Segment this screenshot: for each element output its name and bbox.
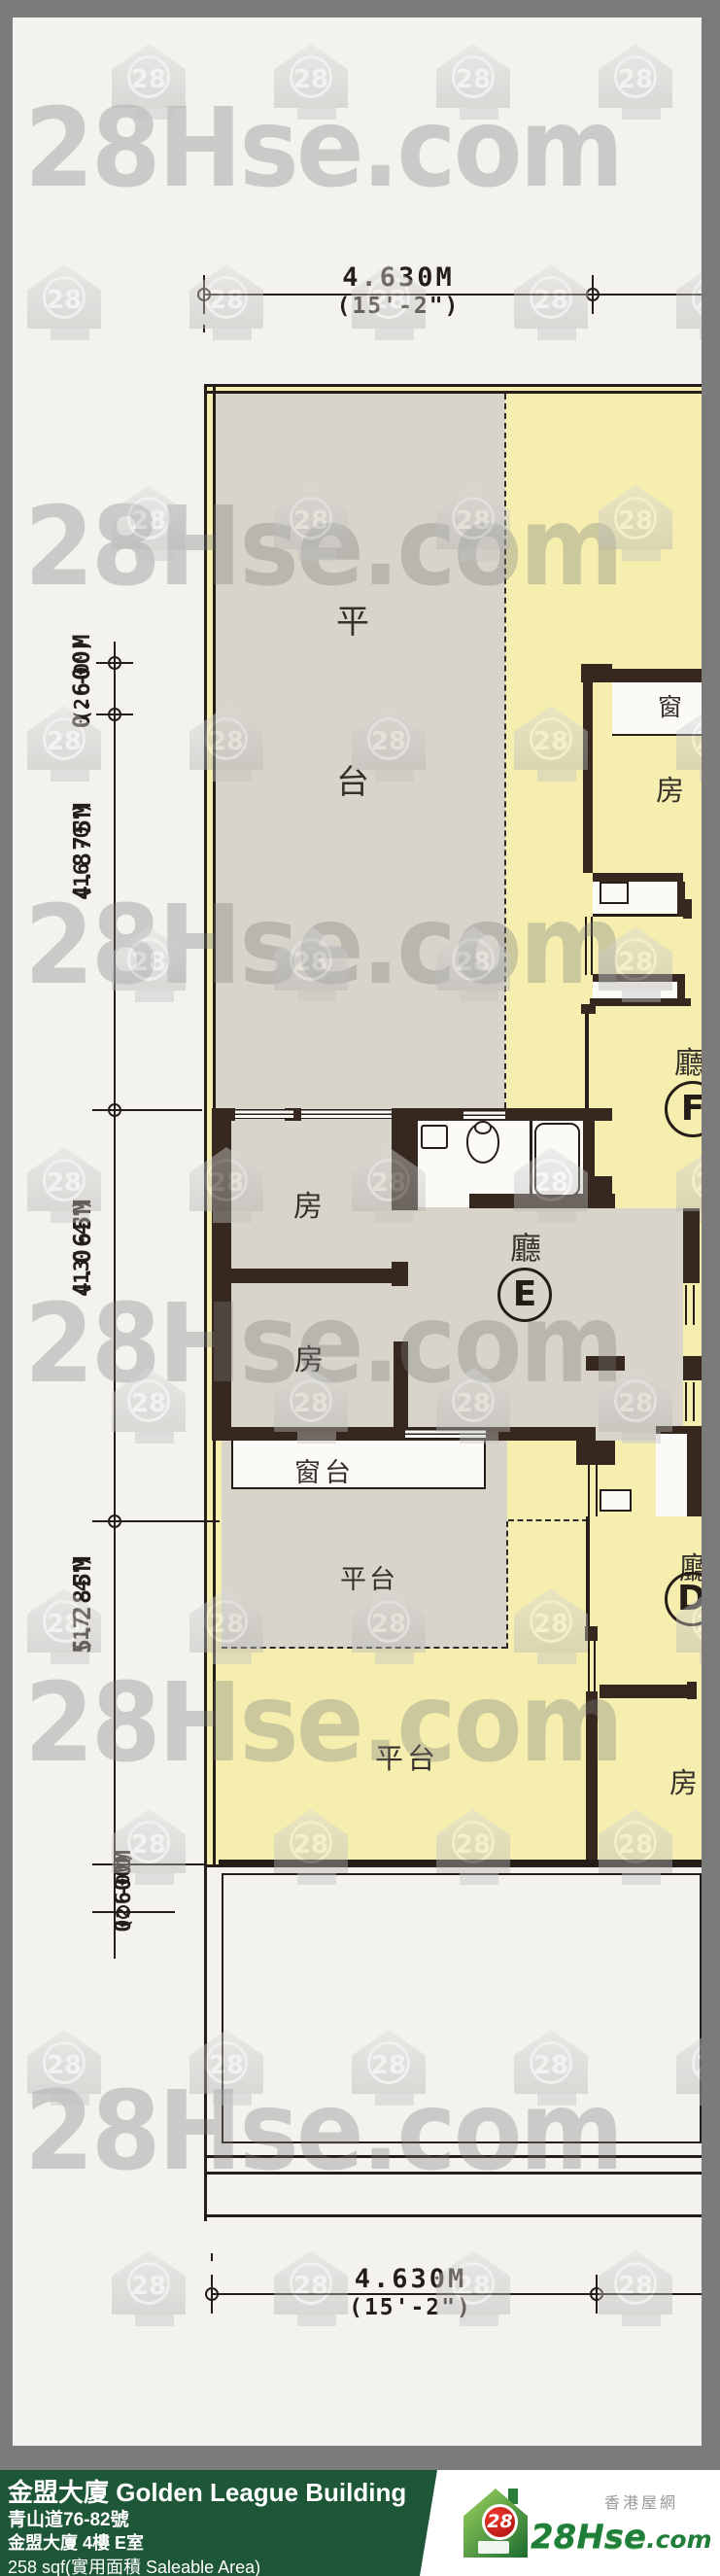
logo-brand-text: 28Hse.com	[531, 2518, 712, 2557]
watermark-house-door	[135, 1432, 174, 1444]
footer-building-title: 金盟大廈 Golden League Building	[8, 2473, 406, 2509]
watermark-house-door	[537, 2094, 576, 2106]
logo-28-badge: 28	[482, 2504, 518, 2540]
watermark-house-door	[622, 108, 661, 120]
watermark-house-door	[297, 108, 336, 120]
watermark-house-icon: 28	[436, 1368, 510, 1445]
watermark-house-icon: 28	[112, 485, 186, 563]
watermark-28-ring: 28	[530, 1159, 572, 1201]
watermark-28-ring: 28	[205, 2041, 248, 2084]
watermark-28-ring: 28	[452, 497, 495, 540]
watermark-house-icon: 28	[514, 1588, 588, 1666]
watermark-28-ring: 28	[127, 2262, 170, 2305]
watermark-house-door	[297, 1432, 336, 1444]
watermark-28-ring: 28	[367, 276, 410, 319]
watermark-house-icon: 28	[189, 1588, 263, 1666]
watermark-28-ring: 28	[127, 1821, 170, 1863]
watermark-28-ring: 28	[530, 2041, 572, 2084]
watermark-28-ring: 28	[452, 1379, 495, 1422]
logo-house-door	[478, 2541, 509, 2554]
watermark-28-ring: 28	[452, 55, 495, 98]
watermark-house-icon: 28	[436, 485, 510, 563]
watermark-house-door	[375, 770, 414, 782]
watermark-house-door	[213, 2094, 252, 2106]
watermark-house-door	[213, 329, 252, 340]
watermark-house-icon: 28	[352, 1147, 426, 1225]
watermark-house-icon: 28	[599, 1809, 672, 1887]
watermark-house-icon: 28	[352, 706, 426, 783]
watermark-house-icon: 28	[599, 2250, 672, 2328]
watermark-28-ring: 28	[127, 497, 170, 540]
watermark-house-icon: 28	[112, 1809, 186, 1887]
watermark-house-icon: 28	[27, 1147, 101, 1225]
watermark-house-door	[51, 1211, 89, 1223]
watermark-house-door	[51, 2094, 89, 2106]
watermark-28-ring: 28	[290, 938, 332, 981]
watermark-house-icon: 28	[599, 44, 672, 122]
watermark-house-door	[213, 1211, 252, 1223]
watermark-house-icon: 28	[189, 2030, 263, 2107]
scan-border-bottom	[0, 2446, 720, 2470]
watermark-28-ring: 28	[614, 1379, 657, 1422]
watermark-text: 28Hse.com	[24, 1660, 621, 1787]
watermark-28-ring: 28	[614, 55, 657, 98]
watermark-house-icon: 28	[112, 1368, 186, 1445]
watermark-house-icon: 28	[112, 2250, 186, 2328]
watermark-house-icon: 28	[274, 2250, 348, 2328]
watermark-28-ring: 28	[43, 717, 86, 760]
footer-area: 258 sqf(實用面積 Saleable Area)	[8, 2554, 260, 2576]
logo-tagline: 香港屋網	[604, 2489, 678, 2513]
watermark-28-ring: 28	[530, 1600, 572, 1643]
watermark-house-icon: 28	[352, 2030, 426, 2107]
watermark-28-ring: 28	[43, 276, 86, 319]
watermark-house-icon: 28	[274, 1368, 348, 1445]
scan-border-top	[0, 0, 720, 17]
watermark-house-icon: 28	[27, 2030, 101, 2107]
watermark-28-ring: 28	[614, 2262, 657, 2305]
watermark-house-icon: 28	[274, 1809, 348, 1887]
watermark-house-icon: 28	[436, 1809, 510, 1887]
watermark-house-door	[622, 1873, 661, 1885]
watermark-house-door	[297, 1873, 336, 1885]
watermark-house-door	[51, 770, 89, 782]
watermark-28-ring: 28	[127, 938, 170, 981]
watermark-house-door	[213, 1653, 252, 1664]
watermark-house-door	[297, 2315, 336, 2326]
watermark-house-icon: 28	[436, 44, 510, 122]
watermark-house-icon: 28	[436, 926, 510, 1004]
watermark-house-door	[375, 1211, 414, 1223]
watermark-28-ring: 28	[367, 1159, 410, 1201]
watermark-house-icon: 28	[514, 1147, 588, 1225]
watermark-house-door	[213, 770, 252, 782]
watermark-house-icon: 28	[274, 44, 348, 122]
watermark-28-ring: 28	[43, 1159, 86, 1201]
watermark-house-door	[622, 1432, 661, 1444]
watermark-house-door	[460, 991, 498, 1002]
scan-border-right	[702, 0, 720, 2470]
watermark-house-door	[297, 549, 336, 561]
watermark-house-door	[375, 2094, 414, 2106]
watermark-house-door	[51, 329, 89, 340]
watermark-house-door	[537, 1653, 576, 1664]
watermark-28-ring: 28	[530, 717, 572, 760]
watermark-house-door	[537, 1211, 576, 1223]
watermark-28-ring: 28	[614, 497, 657, 540]
footer-unit: 金盟大廈 4樓 E室	[8, 2529, 144, 2555]
scan-border-left	[0, 0, 13, 2470]
watermark-28-ring: 28	[290, 2262, 332, 2305]
watermark-house-icon: 28	[599, 926, 672, 1004]
logo-brand-tld: .com	[646, 2525, 712, 2554]
watermark-28-ring: 28	[530, 276, 572, 319]
watermark-layer: 28Hse.com28Hse.com28Hse.com28Hse.com28Hs…	[0, 0, 720, 2446]
watermark-house-door	[537, 770, 576, 782]
watermark-house-door	[375, 1653, 414, 1664]
watermark-28-ring: 28	[205, 1600, 248, 1643]
watermark-house-icon: 28	[27, 264, 101, 342]
watermark-house-icon: 28	[27, 1588, 101, 1666]
logo-brand-main: 28Hse	[531, 2518, 646, 2557]
watermark-house-icon: 28	[352, 264, 426, 342]
watermark-house-icon: 28	[599, 485, 672, 563]
watermark-house-door	[135, 991, 174, 1002]
watermark-28-ring: 28	[367, 2041, 410, 2084]
watermark-house-icon: 28	[436, 2250, 510, 2328]
watermark-house-door	[460, 2315, 498, 2326]
watermark-house-icon: 28	[274, 485, 348, 563]
watermark-28-ring: 28	[290, 497, 332, 540]
watermark-house-door	[135, 1873, 174, 1885]
watermark-house-icon: 28	[112, 44, 186, 122]
watermark-house-icon: 28	[274, 926, 348, 1004]
watermark-28-ring: 28	[452, 2262, 495, 2305]
watermark-28-ring: 28	[290, 1821, 332, 1863]
watermark-house-door	[622, 2315, 661, 2326]
watermark-28-ring: 28	[290, 1379, 332, 1422]
watermark-house-icon: 28	[514, 706, 588, 783]
footer-address: 青山道76-82號	[8, 2505, 129, 2531]
watermark-28-ring: 28	[452, 938, 495, 981]
watermark-house-door	[375, 329, 414, 340]
watermark-28-ring: 28	[127, 55, 170, 98]
watermark-house-door	[460, 1873, 498, 1885]
watermark-house-door	[537, 329, 576, 340]
watermark-28-ring: 28	[205, 717, 248, 760]
watermark-house-door	[135, 108, 174, 120]
watermark-house-door	[622, 991, 661, 1002]
watermark-28-ring: 28	[205, 1159, 248, 1201]
watermark-28-ring: 28	[452, 1821, 495, 1863]
watermark-28-ring: 28	[367, 717, 410, 760]
watermark-house-icon: 28	[599, 1368, 672, 1445]
watermark-house-door	[297, 991, 336, 1002]
watermark-house-door	[460, 1432, 498, 1444]
watermark-house-door	[622, 549, 661, 561]
watermark-house-icon: 28	[112, 926, 186, 1004]
watermark-house-icon: 28	[352, 1588, 426, 1666]
watermark-house-icon: 28	[514, 2030, 588, 2107]
watermark-28-ring: 28	[614, 938, 657, 981]
watermark-house-door	[135, 549, 174, 561]
watermark-28-ring: 28	[367, 1600, 410, 1643]
watermark-house-icon: 28	[189, 706, 263, 783]
watermark-28-ring: 28	[127, 1379, 170, 1422]
watermark-house-door	[460, 549, 498, 561]
floorplan-scan-page: 平 台 房 房 廳 窗台 窗 房 廳 廳 房 平台 平台 E F D 4.630…	[0, 0, 720, 2576]
watermark-house-icon: 28	[514, 264, 588, 342]
watermark-house-door	[460, 108, 498, 120]
watermark-house-door	[135, 2315, 174, 2326]
watermark-28-ring: 28	[290, 55, 332, 98]
watermark-house-door	[51, 1653, 89, 1664]
watermark-house-icon: 28	[27, 706, 101, 783]
watermark-28-ring: 28	[43, 1600, 86, 1643]
watermark-28-ring: 28	[205, 276, 248, 319]
watermark-28-ring: 28	[614, 1821, 657, 1863]
watermark-house-icon: 28	[189, 1147, 263, 1225]
watermark-house-icon: 28	[189, 264, 263, 342]
watermark-28-ring: 28	[43, 2041, 86, 2084]
